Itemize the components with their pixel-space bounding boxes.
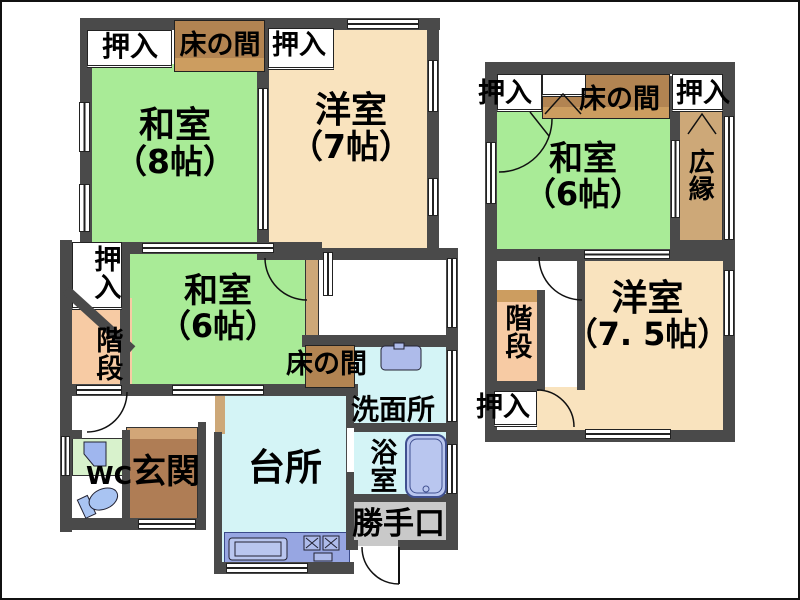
bathtub-icon [406,435,446,497]
label-closet-1f-top-left: 押入 [86,32,174,61]
room-size: （7. 5帖） [560,318,735,352]
label-senmenjo: 洗面所 [351,395,435,424]
label-closet-1f-left: 押入 [90,245,118,301]
room-name: 洋室 [271,92,431,130]
folding-door-mark [688,114,716,134]
label-stairs-2f: 階段 [501,304,529,360]
kitchen-sink-icon [229,538,287,560]
label-wc: WC [86,463,132,489]
label-stairs-1f: 階段 [92,326,120,382]
door-swing-arc [87,392,127,432]
room-name: 和室 [95,107,255,145]
backdoor-swing-arc [362,547,399,584]
label-closet-2f-top-right: 押入 [676,80,730,108]
label-hiroen: 広縁 [685,148,712,202]
washbasin-icon [381,346,421,370]
closet-door-swing-arc [537,390,574,427]
label-yokushitsu: 浴室 [366,438,394,494]
room-size: （6帖） [138,310,298,344]
label-yoshitsu7: 洋室 （7帖） [271,92,431,164]
label-closet-1f-top-right: 押入 [260,32,338,60]
folding-door-mark [545,94,581,114]
room-size: （6帖） [503,178,663,212]
washbasin-faucet [394,343,404,349]
label-closet-2f-top-left: 押入 [478,80,532,108]
label-daidokoro: 台所 [248,449,322,488]
label-katteguchi: 勝手口 [352,508,445,541]
label-yoshitsu75: 洋室 （7. 5帖） [560,280,735,351]
label-closet-2f-bottom: 押入 [476,394,530,422]
floorplan-canvas: 押入 床の間 押入 和室 （8帖） 洋室 （7帖） 押入 階段 和室 （6帖） … [0,0,800,600]
label-tokonoma-1f-top: 床の間 [170,32,270,60]
room-name: 和室 [138,274,298,310]
room-size: （8帖） [95,145,255,180]
label-washitsu6-1f: 和室 （6帖） [138,274,298,343]
label-genkan: 玄関 [132,455,200,491]
room-name: 洋室 [560,280,735,318]
label-tokonoma-1f-mid: 床の間 [286,351,367,379]
label-washitsu6-2f: 和室 （6帖） [503,142,663,211]
room-size: （7帖） [271,130,431,165]
room-name: 和室 [503,142,663,178]
folding-door-mark [530,112,549,136]
stove-grill-icon [314,553,332,561]
label-tokonoma-2f: 床の間 [579,86,660,114]
label-washitsu8: 和室 （8帖） [95,107,255,179]
